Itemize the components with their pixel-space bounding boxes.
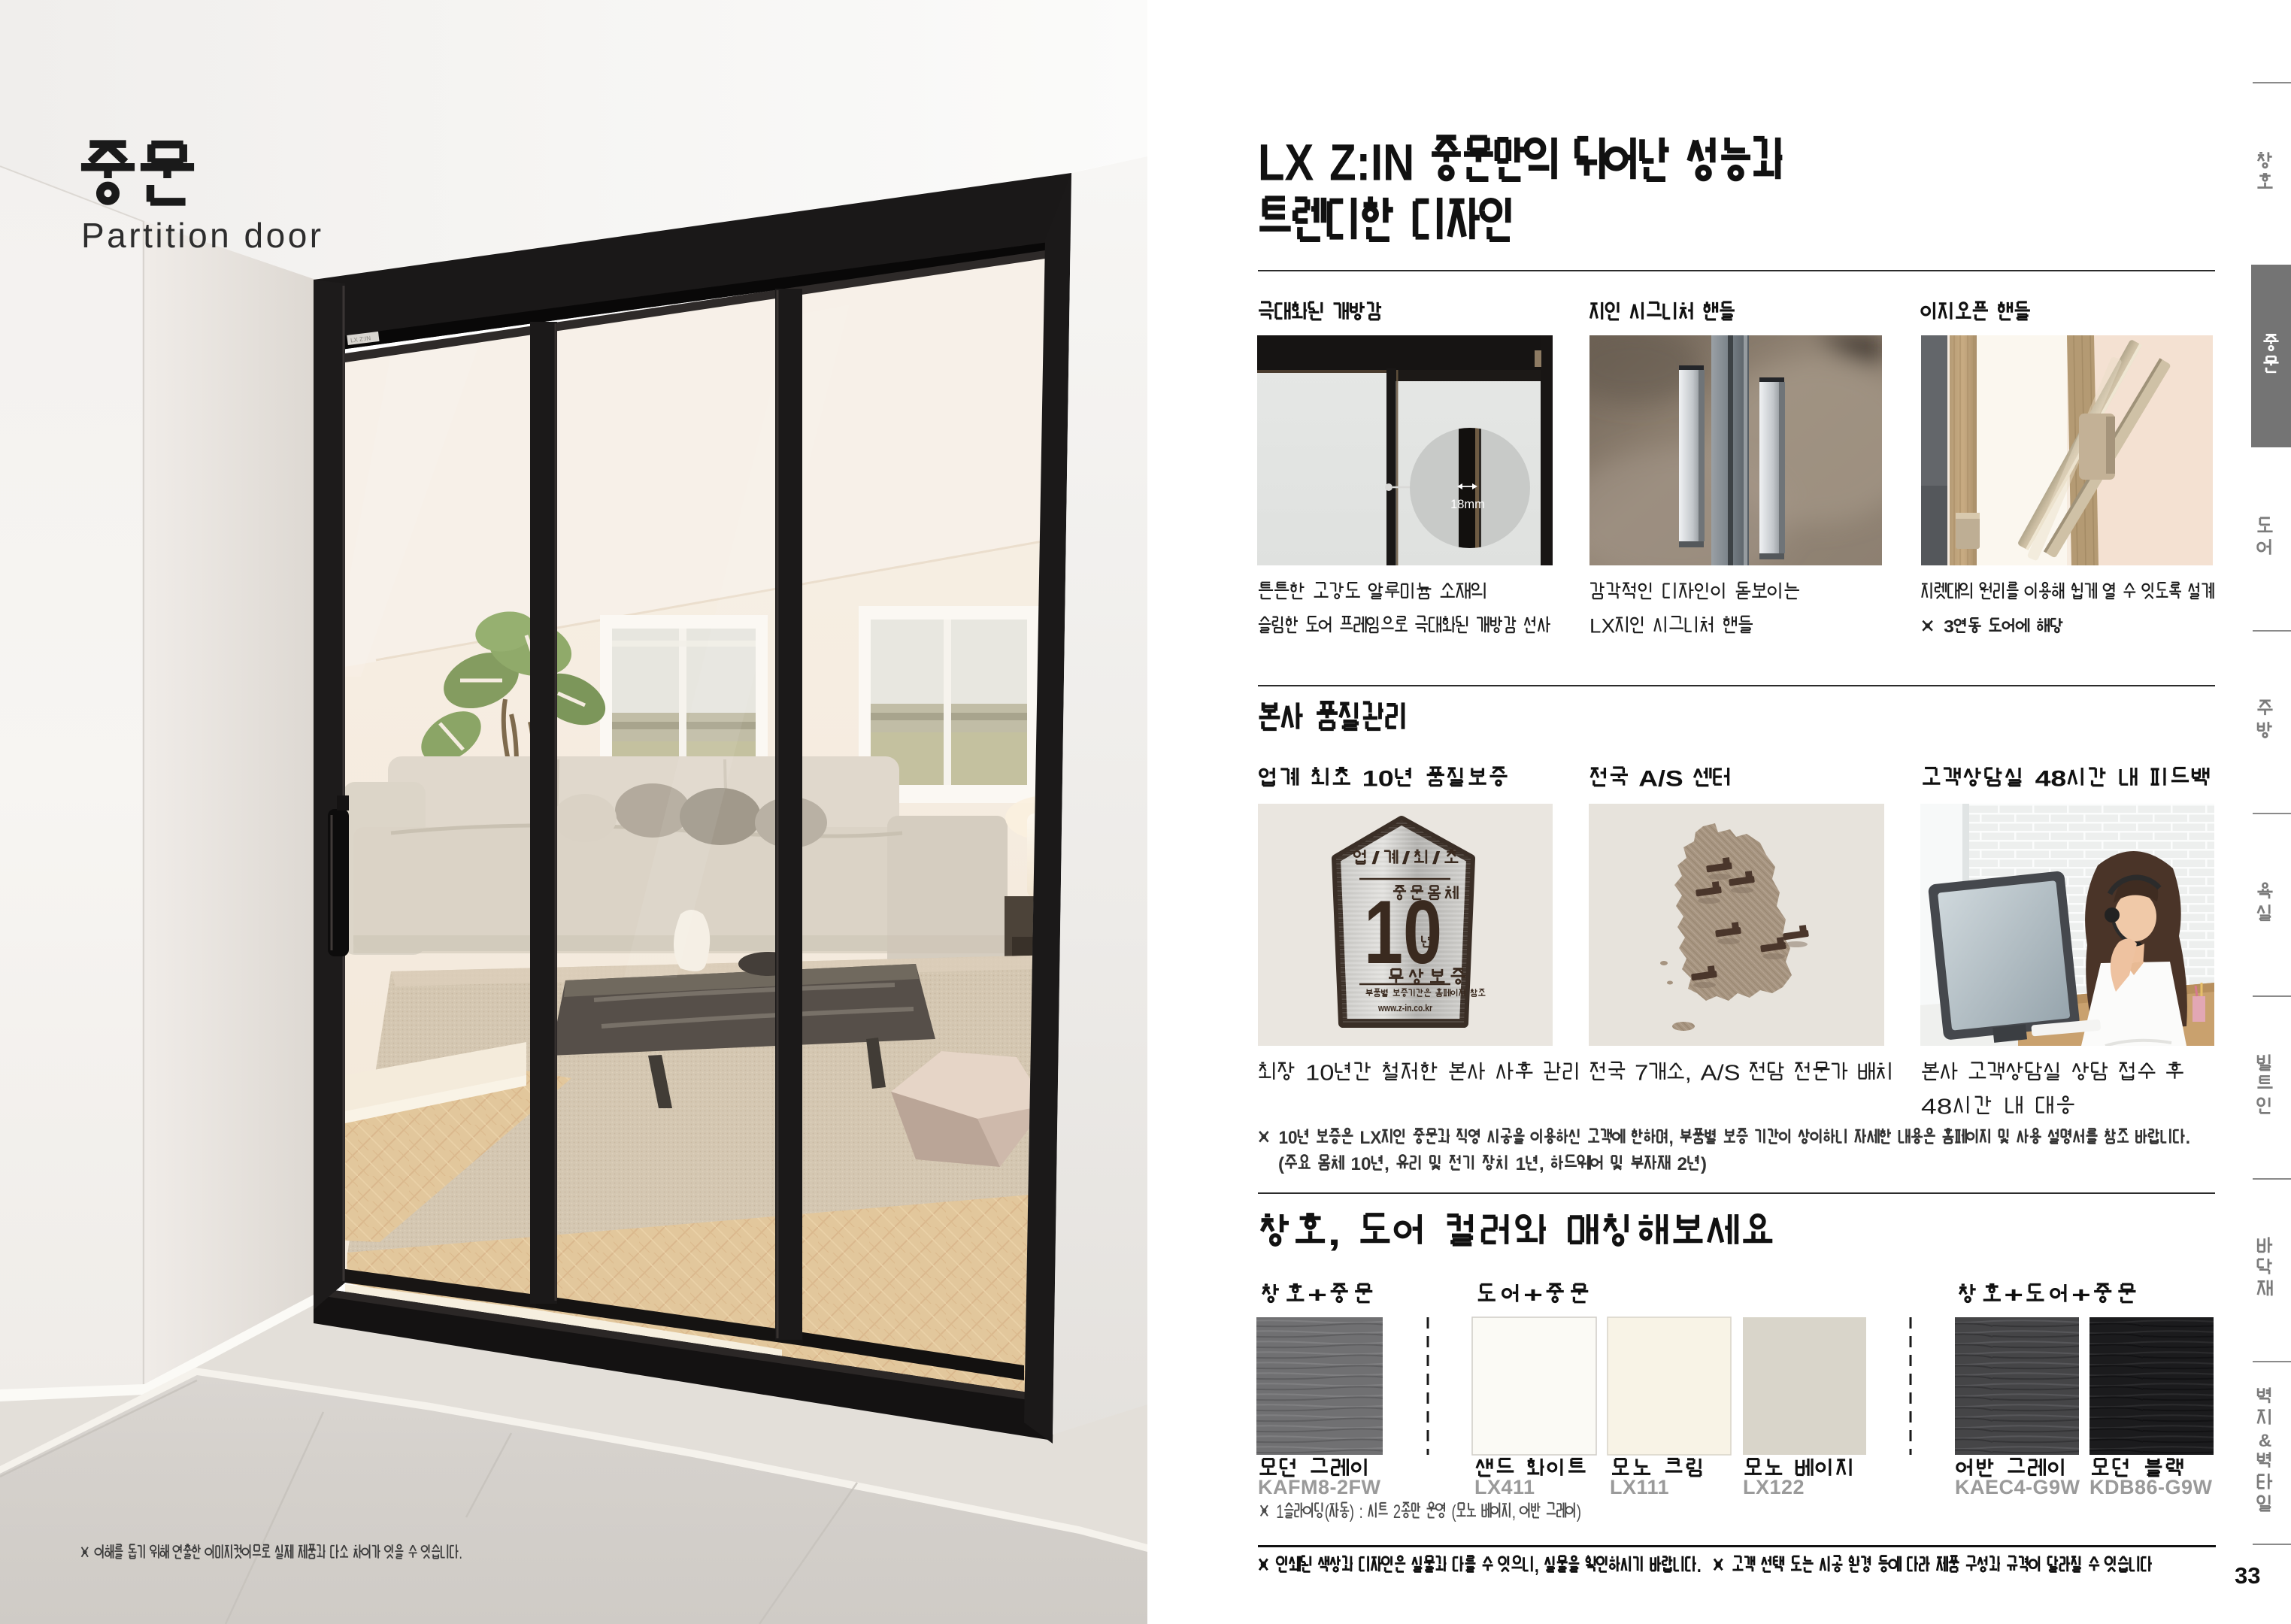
svg-text:,: , <box>1685 1061 1692 1085</box>
svg-text:1: 1 <box>1276 1502 1283 1522</box>
svg-text:): ) <box>1701 1154 1707 1174</box>
svg-text:48: 48 <box>2035 766 2067 791</box>
svg-text:www.z-in.co.kr: www.z-in.co.kr <box>1377 1002 1432 1013</box>
svg-text:18mm: 18mm <box>1450 498 1485 511</box>
svg-text:+: + <box>2004 1283 2023 1307</box>
svg-text:10: 10 <box>1362 766 1394 791</box>
svg-text:LX: LX <box>1589 615 1615 638</box>
svg-text::: : <box>1359 1502 1363 1522</box>
svg-text:LX: LX <box>1360 1128 1382 1148</box>
svg-text:+: + <box>2071 1283 2091 1307</box>
svg-text:(: ( <box>1278 1154 1284 1174</box>
svg-text:&: & <box>2259 1431 2272 1451</box>
svg-text:2: 2 <box>1393 1502 1401 1522</box>
svg-text:10: 10 <box>1305 1061 1334 1085</box>
svg-text:1: 1 <box>1516 1154 1526 1174</box>
svg-text:,: , <box>1384 1154 1389 1174</box>
svg-text:(: ( <box>1325 1502 1330 1522</box>
svg-text:.: . <box>459 1543 462 1562</box>
svg-text:Z:IN: Z:IN <box>1329 134 1414 191</box>
svg-text:10: 10 <box>1351 1154 1371 1174</box>
svg-text:48: 48 <box>1921 1095 1953 1119</box>
svg-text:,: , <box>1669 1128 1674 1148</box>
svg-text:.: . <box>2186 1128 2190 1148</box>
svg-text:+: + <box>1523 1283 1543 1307</box>
svg-text:3: 3 <box>1944 617 1954 636</box>
svg-text:A/S: A/S <box>1701 1061 1741 1085</box>
svg-text:): ) <box>1577 1502 1581 1522</box>
svg-text:.: . <box>1697 1556 1702 1577</box>
svg-text:,: , <box>1328 1212 1341 1253</box>
svg-text:/: / <box>1432 848 1441 868</box>
svg-text:,: , <box>1512 1502 1516 1522</box>
svg-text:): ) <box>1350 1502 1354 1522</box>
svg-text:2: 2 <box>1677 1154 1687 1174</box>
svg-text:/: / <box>1402 848 1411 868</box>
svg-text:10: 10 <box>1279 1128 1298 1148</box>
svg-text:,: , <box>1539 1154 1544 1174</box>
svg-text:,: , <box>1535 1556 1539 1577</box>
svg-text:(: ( <box>1452 1502 1457 1522</box>
svg-text:7: 7 <box>1635 1061 1648 1085</box>
svg-text:A/S: A/S <box>1638 766 1683 791</box>
svg-text:LX: LX <box>1258 134 1314 191</box>
svg-text:+: + <box>1308 1283 1327 1307</box>
svg-text:/: / <box>1371 848 1380 868</box>
